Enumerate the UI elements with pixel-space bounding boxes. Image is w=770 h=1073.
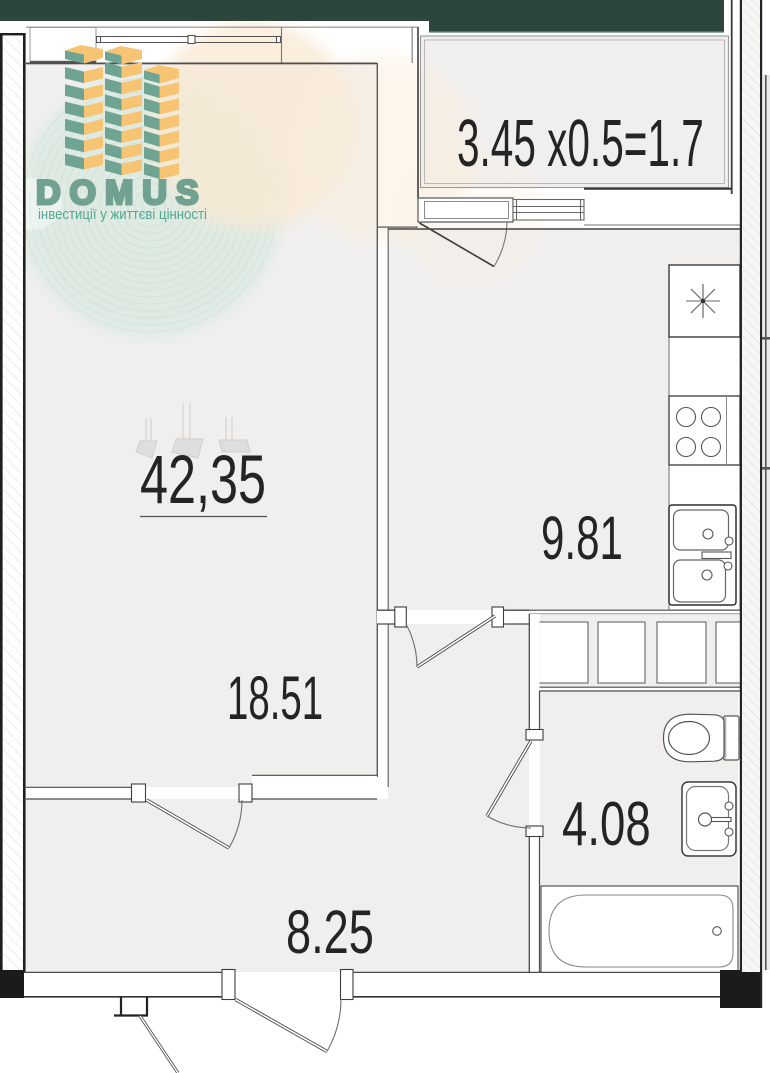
- svg-text:4.08: 4.08: [562, 789, 651, 859]
- svg-text:3.45 x0.5=1.7: 3.45 x0.5=1.7: [457, 105, 704, 180]
- svg-text:18.51: 18.51: [227, 664, 323, 732]
- svg-text:інвестиції у життєві цінності: інвестиції у життєві цінності: [38, 205, 207, 222]
- svg-text:9.81: 9.81: [541, 505, 623, 573]
- svg-text:8.25: 8.25: [286, 898, 374, 966]
- svg-text:42,35: 42,35: [140, 440, 266, 518]
